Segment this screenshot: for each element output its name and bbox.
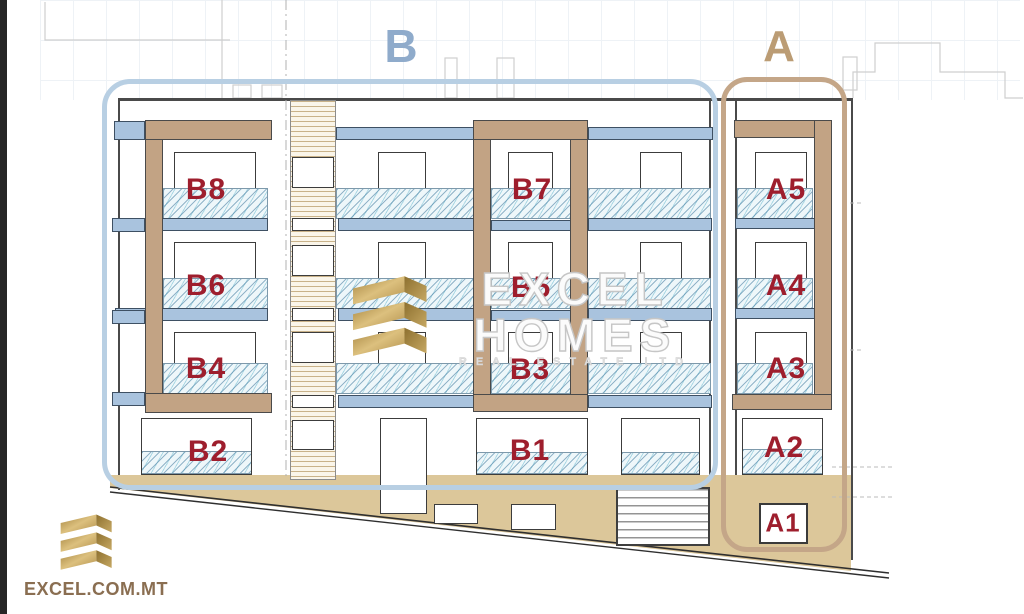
unit-label-b7: B7 <box>512 173 552 207</box>
excel-chevron-logo-icon <box>341 264 441 362</box>
unit-label-b8: B8 <box>186 173 226 207</box>
unit-label-a1: A1 <box>765 508 800 539</box>
unit-label-b2: B2 <box>188 435 228 469</box>
excel-chevron-logo-icon <box>53 506 121 574</box>
left-edge-bar <box>0 0 7 614</box>
watermark-subtitle: HOMES <box>448 308 703 362</box>
footer-site-text: EXCEL.COM.MT <box>24 579 168 600</box>
section-label-b: B <box>384 19 417 73</box>
section-label-a: A <box>763 22 795 72</box>
basement-window <box>434 504 478 524</box>
unit-label-a3: A3 <box>766 352 806 386</box>
watermark-tagline: REAL ESTATE LTD <box>448 356 703 368</box>
garage-door <box>616 487 710 546</box>
unit-label-b4: B4 <box>186 352 226 386</box>
unit-label-a4: A4 <box>766 269 806 303</box>
unit-label-a2: A2 <box>764 431 804 465</box>
unit-label-b1: B1 <box>510 434 550 468</box>
unit-label-a5: A5 <box>766 173 806 207</box>
unit-label-b6: B6 <box>186 269 226 303</box>
basement-window <box>511 504 556 530</box>
section-outline-a <box>721 77 847 552</box>
building-elevation-drawing: B A B8 B7 A5 B6 B5 A4 B4 B3 A3 B2 B1 A2 … <box>0 0 1024 614</box>
